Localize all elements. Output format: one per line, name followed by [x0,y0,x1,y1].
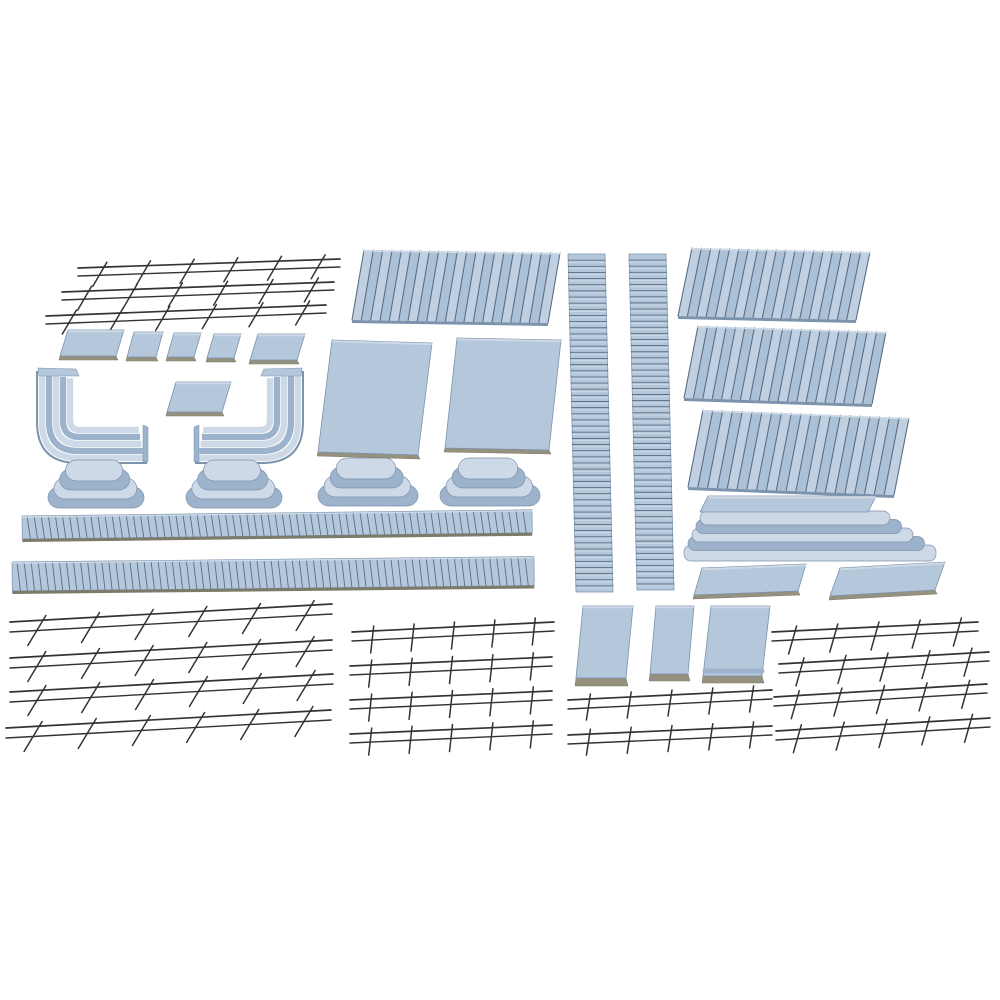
model-kit-parts-photo [0,0,1000,1000]
wall-panel-2 [649,606,694,681]
platform-tile-5 [249,334,305,364]
slat-panel-right-1 [678,248,870,323]
scene-canvas [0,0,1000,1000]
ribbed-ramp-strip-2 [629,254,674,590]
slat-panel-right-3 [688,410,909,498]
slat-panel-center [352,250,560,326]
platform-slab-2 [829,562,945,600]
ribbed-ramp-strip-1 [568,254,613,592]
platform-tile-1 [59,330,124,360]
corrugated-strip-2 [12,557,534,594]
wall-panel-1 [575,606,633,686]
platform-tile-center [166,382,231,416]
platform-deck-2 [444,338,561,454]
slat-panel-right-2 [684,326,886,407]
wall-panel-3 [702,606,770,683]
platform-deck-1 [317,340,432,459]
platform-slab-1 [693,564,806,599]
